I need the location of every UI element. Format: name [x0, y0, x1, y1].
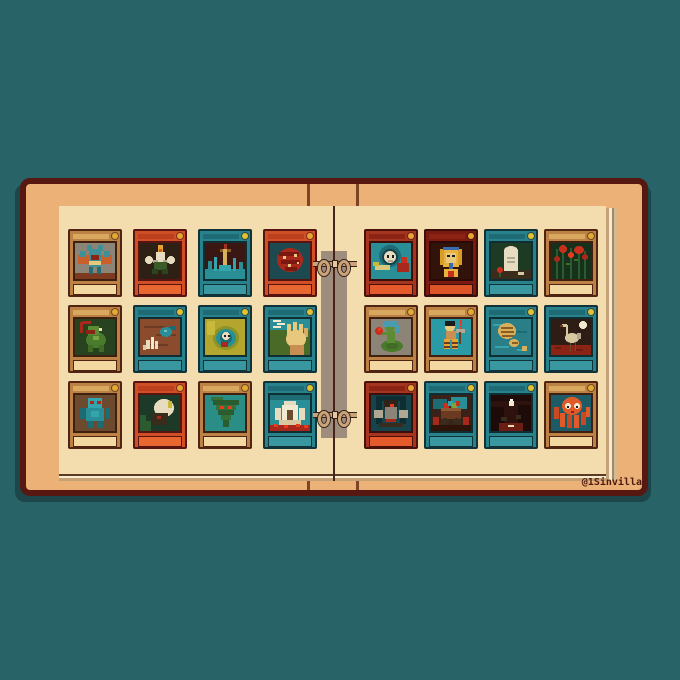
page-stack-edge-right: [606, 208, 617, 481]
gold-seal-icon: [588, 309, 594, 315]
gold-seal-icon: [408, 385, 414, 391]
card-axe-warrior: [424, 305, 478, 373]
card-name-plate: [73, 386, 109, 391]
card-name-plate: [203, 234, 239, 239]
card-white-shrine: [263, 381, 317, 449]
card-green-lizard-whip: [68, 305, 122, 373]
card-text-box: [138, 436, 182, 447]
card-text-box: [73, 284, 117, 295]
card-name-plate: [73, 310, 109, 315]
gold-seal-icon: [468, 233, 474, 239]
gold-seal-icon: [242, 233, 248, 239]
card-name-plate: [489, 386, 525, 391]
card-text-box: [369, 284, 413, 295]
gold-seal-icon: [242, 385, 248, 391]
card-art-pharaoh-mask: [429, 241, 473, 281]
card-name-plate: [429, 386, 465, 391]
card-text-box: [268, 284, 312, 295]
card-gravestone-flower: [484, 229, 538, 297]
card-art-skull-vortex: [203, 317, 247, 357]
card-name-plate: [549, 234, 585, 239]
card-gem-cart: [424, 381, 478, 449]
card-art-green-tornado: [203, 393, 247, 433]
gold-seal-icon: [468, 309, 474, 315]
card-text-box: [268, 436, 312, 447]
gold-seal-icon: [177, 385, 183, 391]
card-art-green-lizard-whip: [73, 317, 117, 357]
gold-seal-icon: [112, 309, 118, 315]
spine-crease: [307, 184, 310, 206]
ring-clip: [332, 260, 338, 268]
card-name-plate: [489, 234, 525, 239]
card-blue-bat-fiend: [68, 229, 122, 297]
gold-seal-icon: [177, 309, 183, 315]
artist-signature: @1Sinvilla: [560, 476, 642, 490]
card-text-box: [138, 360, 182, 371]
card-name-plate: [369, 234, 405, 239]
card-art-falling-droplet: [138, 317, 182, 357]
card-name-plate: [138, 386, 174, 391]
gold-seal-icon: [528, 233, 534, 239]
card-name-plate: [268, 386, 304, 391]
card-art-axe-warrior: [429, 317, 473, 357]
ring-loop-icon: [338, 260, 350, 276]
card-text-box: [73, 436, 117, 447]
card-text-box: [268, 360, 312, 371]
gold-seal-icon: [408, 309, 414, 315]
gold-seal-icon: [112, 233, 118, 239]
page-gap-line: [333, 206, 335, 481]
card-art-golden-footprint: [489, 317, 533, 357]
card-name-plate: [138, 310, 174, 315]
card-art-gravestone-flower: [489, 241, 533, 281]
card-art-candle-creature: [138, 241, 182, 281]
spine-crease: [307, 481, 310, 490]
card-name-plate: [549, 386, 585, 391]
card-name-plate: [203, 386, 239, 391]
ring-clip: [332, 411, 338, 419]
gold-seal-icon: [112, 385, 118, 391]
card-caged-machine-fiend: [364, 381, 418, 449]
card-text-box: [369, 360, 413, 371]
cards-left: [68, 229, 317, 449]
card-candle-creature: [133, 229, 187, 297]
card-hand-of-judgement: [263, 305, 317, 373]
pixel-art-scene: @1Sinvilla: [0, 0, 680, 680]
card-teal-golem: [68, 381, 122, 449]
gold-seal-icon: [408, 233, 414, 239]
card-art-red-octopus: [549, 393, 593, 433]
card-red-eyed-husk: [263, 229, 317, 297]
card-art-teal-golem: [73, 393, 117, 433]
card-crimson-thorns: [544, 229, 598, 297]
card-name-plate: [429, 310, 465, 315]
card-red-octopus: [544, 381, 598, 449]
ring-loop-icon: [318, 260, 330, 276]
card-golden-footprint: [484, 305, 538, 373]
card-text-box: [203, 360, 247, 371]
gold-seal-icon: [588, 233, 594, 239]
card-name-plate: [369, 386, 405, 391]
gold-seal-icon: [307, 309, 313, 315]
card-text-box: [549, 360, 593, 371]
card-pharaoh-mask: [424, 229, 478, 297]
card-art-white-shrine: [268, 393, 312, 433]
card-name-plate: [489, 310, 525, 315]
card-name-plate: [203, 310, 239, 315]
card-sword-in-water: [198, 229, 252, 297]
gold-seal-icon: [528, 309, 534, 315]
card-text-box: [489, 284, 533, 295]
card-name-plate: [549, 310, 585, 315]
gold-seal-icon: [468, 385, 474, 391]
gold-seal-icon: [588, 385, 594, 391]
card-falling-droplet: [133, 305, 187, 373]
card-text-box: [429, 436, 473, 447]
card-art-hand-of-judgement: [268, 317, 312, 357]
card-art-red-eyed-husk: [268, 241, 312, 281]
cards-right: [364, 229, 598, 449]
card-art-hooded-skull: [369, 241, 413, 281]
card-white-maned-beast: [133, 381, 187, 449]
ring-loop-icon: [338, 411, 350, 427]
card-text-box: [429, 360, 473, 371]
card-art-white-maned-beast: [138, 393, 182, 433]
card-text-box: [489, 436, 533, 447]
card-green-tornado: [198, 381, 252, 449]
card-name-plate: [73, 234, 109, 239]
card-floating-gem-valley: [484, 381, 538, 449]
card-name-plate: [369, 310, 405, 315]
card-text-box: [203, 284, 247, 295]
card-text-box: [73, 360, 117, 371]
gold-seal-icon: [177, 233, 183, 239]
card-art-floating-gem-valley: [489, 393, 533, 433]
gold-seal-icon: [307, 385, 313, 391]
card-crane-red-field: [544, 305, 598, 373]
spine-crease: [356, 184, 359, 206]
spine-crease: [356, 481, 359, 490]
card-name-plate: [138, 234, 174, 239]
card-art-crimson-thorns: [549, 241, 593, 281]
card-text-box: [549, 436, 593, 447]
binder-ring-top: [313, 257, 357, 281]
card-text-box: [489, 360, 533, 371]
binder-ring-bottom: [313, 408, 357, 432]
card-name-plate: [268, 310, 304, 315]
card-hooded-skull: [364, 229, 418, 297]
ring-loop-icon: [318, 411, 330, 427]
card-art-blue-bat-fiend: [73, 241, 117, 281]
card-art-serpent-maiden: [369, 317, 413, 357]
gold-seal-icon: [242, 309, 248, 315]
card-serpent-maiden: [364, 305, 418, 373]
gold-seal-icon: [528, 385, 534, 391]
gold-seal-icon: [307, 233, 313, 239]
card-art-gem-cart: [429, 393, 473, 433]
card-name-plate: [268, 234, 304, 239]
card-text-box: [549, 284, 593, 295]
card-art-caged-machine-fiend: [369, 393, 413, 433]
card-text-box: [138, 284, 182, 295]
card-art-sword-in-water: [203, 241, 247, 281]
card-text-box: [203, 436, 247, 447]
card-name-plate: [429, 234, 465, 239]
card-text-box: [429, 284, 473, 295]
card-art-crane-red-field: [549, 317, 593, 357]
card-skull-vortex: [198, 305, 252, 373]
card-text-box: [369, 436, 413, 447]
